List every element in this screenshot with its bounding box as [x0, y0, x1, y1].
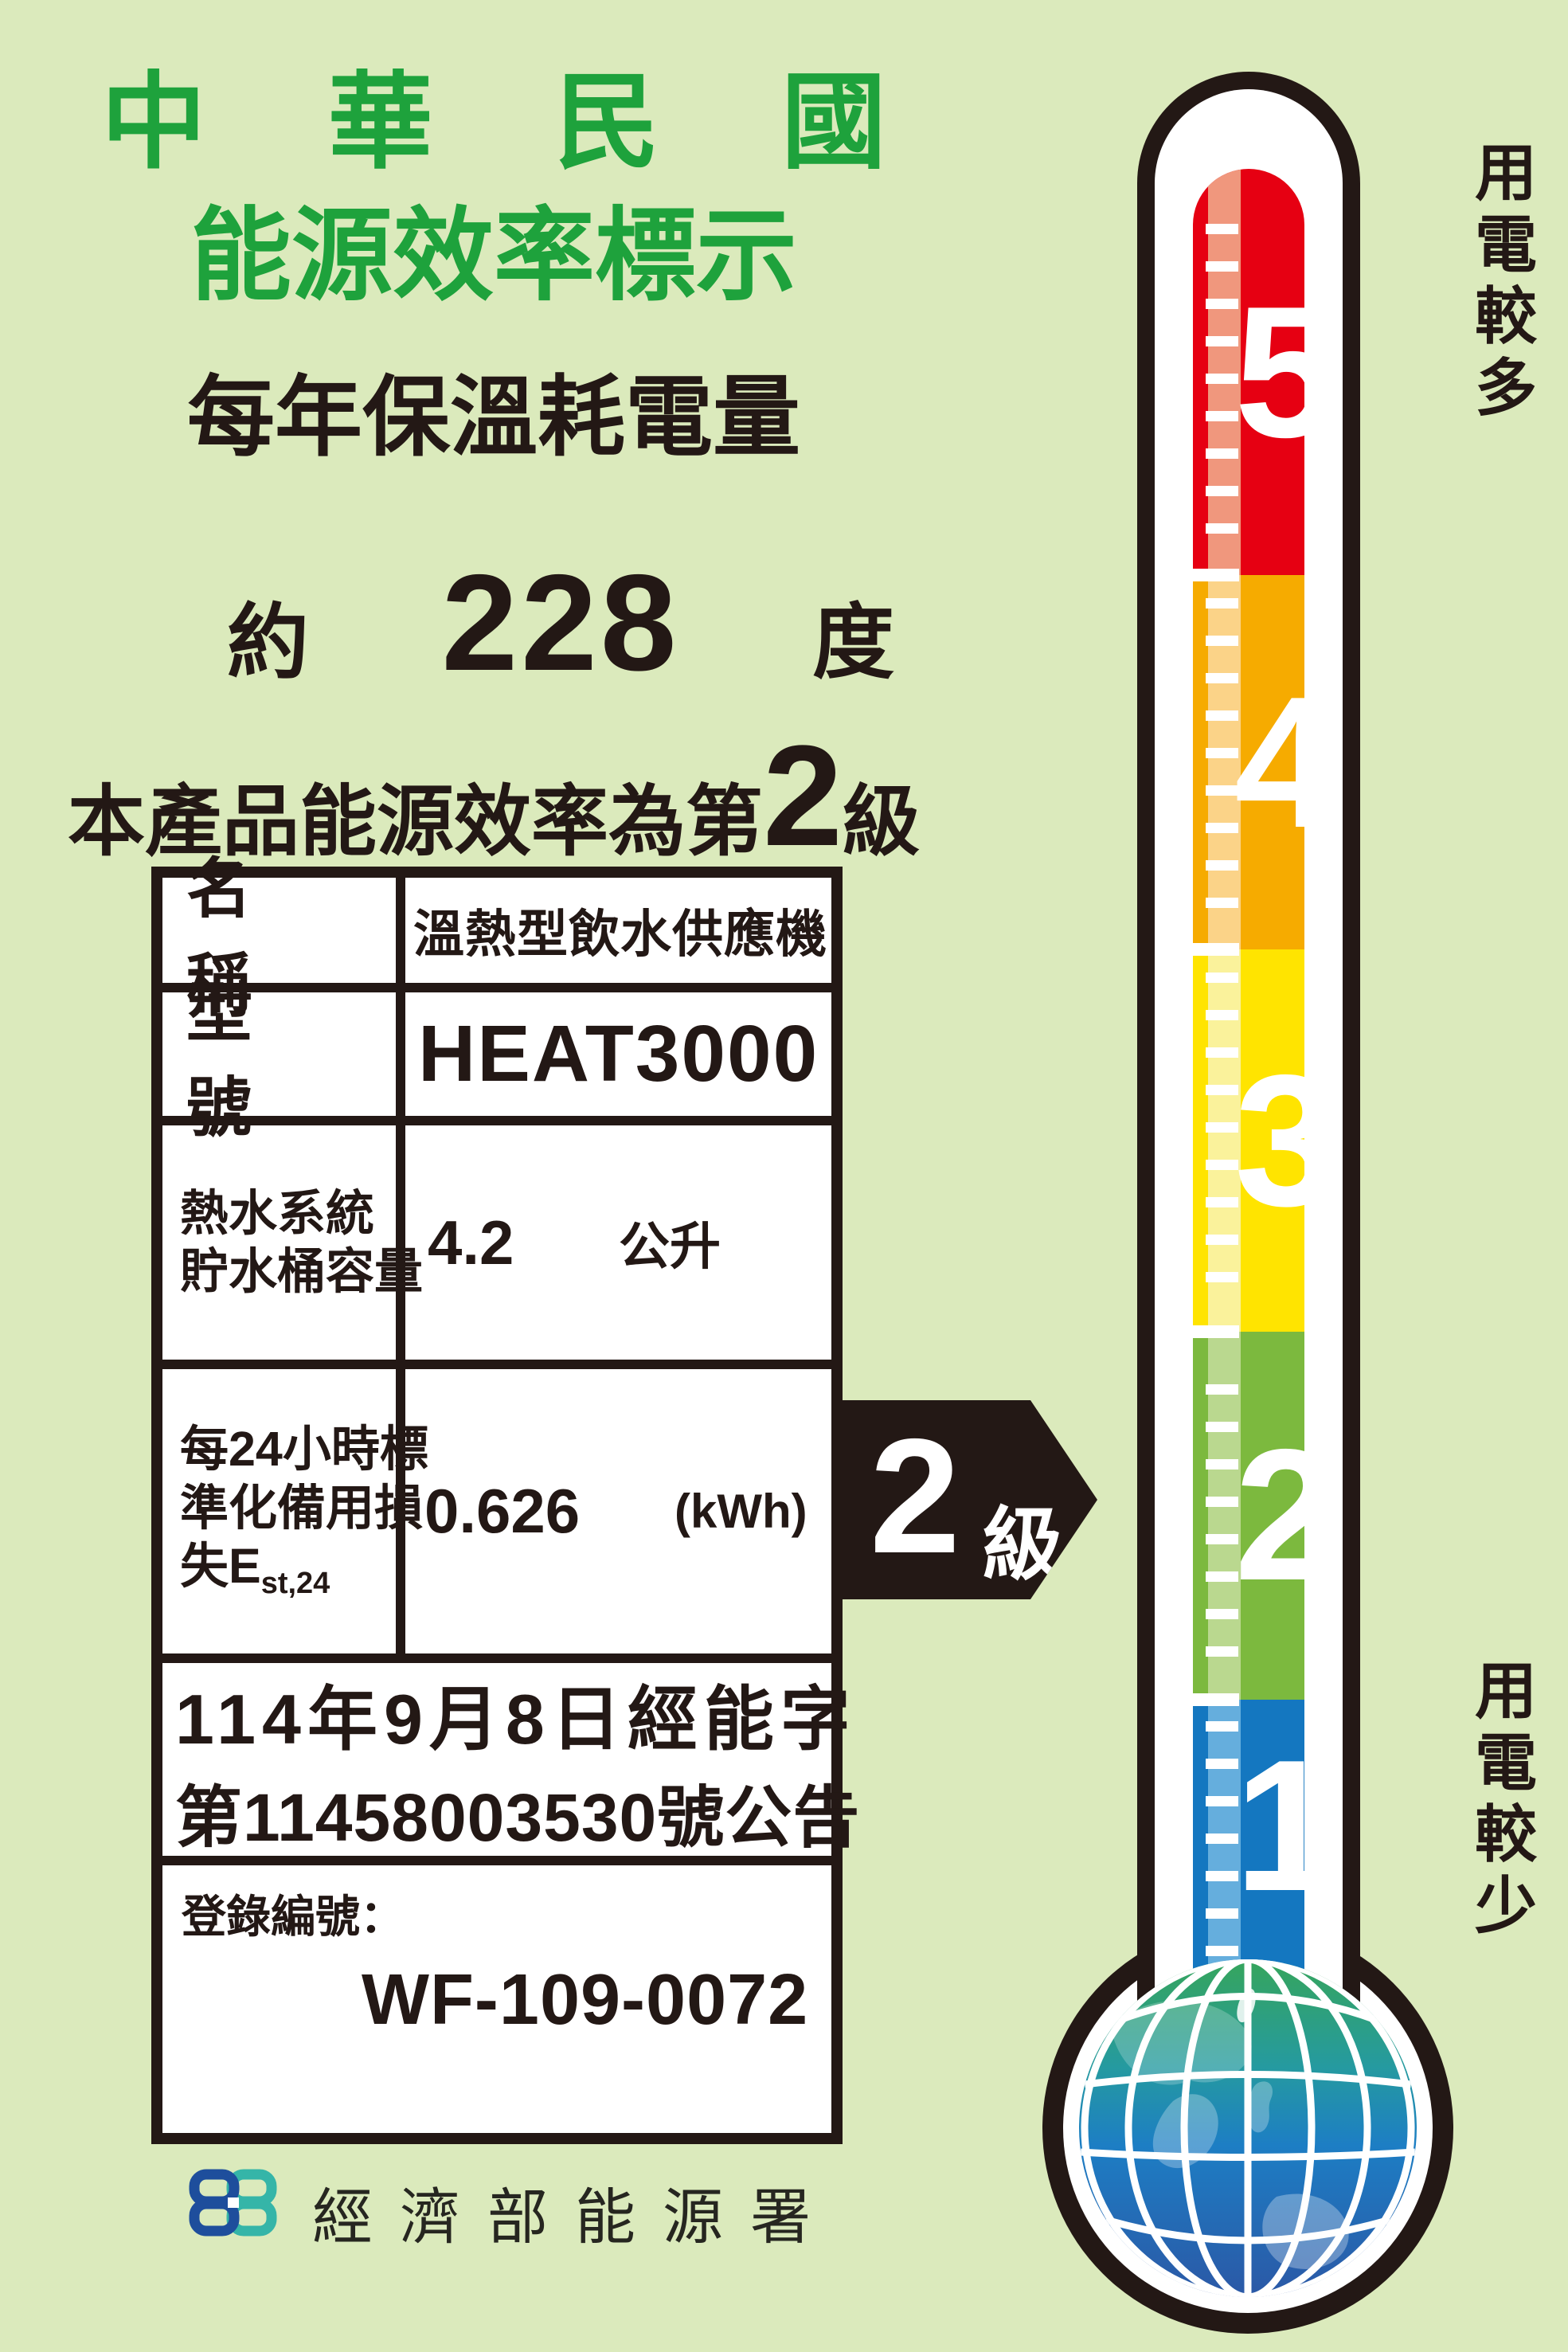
uses-less-power-label: 用電較少	[1470, 1655, 1542, 1942]
scale-tick	[1206, 1235, 1238, 1245]
label-title-line2: 能源效率標示	[0, 198, 987, 314]
rating-suffix: 級	[843, 781, 920, 863]
scale-tick	[1206, 1497, 1238, 1507]
scale-tick	[1206, 748, 1238, 758]
scale-tick	[1206, 1871, 1238, 1881]
scale-boundary-tick	[1193, 943, 1239, 956]
scale-tick	[1206, 710, 1238, 721]
agency-name: 經濟部能源署	[312, 2168, 838, 2256]
table-row-standby-loss: 每24小時標 準化備用損 失Est,24 0.626 (kWh)	[162, 1369, 831, 1663]
annual-consumption-heading: 每年保溫耗電量	[0, 368, 987, 469]
consumption-prefix: 約	[227, 601, 309, 683]
registration-number: WF-109-0072	[362, 1959, 808, 2041]
thermometer: 54321	[1137, 72, 1360, 2007]
scale-tick	[1206, 972, 1238, 983]
table-row-announcement: 114年9月8日經能字 第11458003530號公告	[162, 1663, 831, 1865]
announcement-line1: 114年9月8日經能字	[175, 1663, 860, 1764]
scale-tick	[1206, 1759, 1238, 1769]
model-value: HEAT3000	[405, 1008, 819, 1100]
standby-loss-label-line3: 失Est,24	[180, 1537, 396, 1603]
vertical-caption-char: 較	[1470, 1798, 1542, 1870]
scale-boundary-tick	[1193, 1693, 1239, 1706]
model-label: 型 號	[186, 960, 396, 1149]
scale-boundary-tick	[1193, 1325, 1239, 1338]
scale-tick	[1206, 1946, 1238, 1956]
scale-tick	[1206, 374, 1238, 384]
scale-tick	[1206, 1384, 1238, 1395]
scale-tick	[1206, 448, 1238, 459]
scale-tick	[1206, 1571, 1238, 1582]
scale-tick	[1206, 636, 1238, 646]
vertical-caption-char: 少	[1470, 1870, 1542, 1942]
spec-table: 名 稱 溫熱型飲水供應機 型 號 HEAT3000 熱水系統 貯水桶容量 4.2…	[151, 867, 843, 2144]
thermometer-level-number-4: 4	[1234, 668, 1304, 855]
scale-tick	[1206, 1010, 1238, 1020]
consumption-value: 228	[442, 554, 680, 691]
earth-globe	[1079, 1959, 1417, 2297]
scale-tick	[1206, 1160, 1238, 1170]
standby-loss-value: 0.626	[424, 1475, 580, 1548]
grade-arrow-suffix: 級	[983, 1480, 1062, 1595]
scale-tick	[1206, 785, 1238, 796]
scale-tick	[1206, 523, 1238, 534]
vertical-caption-char: 用	[1470, 1655, 1542, 1727]
scale-tick	[1206, 261, 1238, 272]
vertical-caption-char: 多	[1470, 352, 1542, 424]
rating-prefix: 本產品能源效率為第	[68, 781, 763, 863]
standby-loss-label-line2: 準化備用損	[180, 1479, 396, 1537]
table-row-tank-capacity: 熱水系統 貯水桶容量 4.2 公升	[162, 1125, 831, 1369]
scale-tick	[1206, 336, 1238, 346]
scale-tick	[1206, 598, 1238, 609]
thermometer-level-number-3: 3	[1234, 1047, 1304, 1234]
scale-tick	[1206, 1122, 1238, 1133]
energy-efficiency-label: 中 華 民 國 能源效率標示 每年保溫耗電量 約 228 度 本產品能源效率為第…	[0, 0, 1568, 2352]
scale-tick	[1206, 1721, 1238, 1732]
thermometer-level-number-1: 1	[1234, 1732, 1304, 1919]
scale-tick	[1206, 224, 1238, 234]
announcement-line2: 第11458003530號公告	[175, 1764, 860, 1861]
vertical-caption-char: 用	[1470, 137, 1542, 209]
vertical-caption-char: 較	[1470, 280, 1542, 352]
scale-tick	[1206, 1047, 1238, 1058]
label-title-line1: 中 華 民 國	[0, 62, 987, 183]
standby-loss-label-line1: 每24小時標	[180, 1420, 396, 1478]
consumption-unit: 度	[812, 601, 894, 683]
tank-capacity-value: 4.2	[428, 1207, 514, 1279]
scale-tick	[1206, 1422, 1238, 1432]
tank-capacity-unit: 公升	[619, 1206, 721, 1279]
scale-boundary-tick	[1193, 569, 1239, 581]
grade-arrow: 2 級	[841, 1400, 1097, 1599]
thermometer-level-number-2: 2	[1234, 1421, 1304, 1608]
vertical-caption-char: 電	[1470, 209, 1542, 280]
energy-administration-logo-icon	[189, 2169, 277, 2237]
scale-tick	[1206, 1609, 1238, 1619]
scale-tick	[1206, 299, 1238, 309]
scale-tick	[1206, 1272, 1238, 1282]
scale-tick	[1206, 673, 1238, 683]
scale-tick	[1206, 486, 1238, 496]
tank-capacity-label-line2: 貯水桶容量	[180, 1243, 396, 1301]
scale-tick	[1206, 860, 1238, 871]
scale-tick	[1206, 411, 1238, 421]
uses-more-power-label: 用電較多	[1470, 137, 1542, 424]
scale-tick	[1206, 823, 1238, 833]
thermometer-level-number-5: 5	[1234, 278, 1304, 465]
consumption-row: 約 228 度	[227, 550, 894, 691]
scale-tick	[1206, 1796, 1238, 1806]
tank-capacity-label-line1: 熱水系統	[180, 1184, 396, 1243]
thermometer-inner-ring: 54321	[1155, 89, 1343, 2007]
scale-tick	[1206, 1534, 1238, 1544]
table-row-model: 型 號 HEAT3000	[162, 992, 831, 1125]
scale-tick	[1206, 1197, 1238, 1207]
scale-tick	[1206, 898, 1238, 908]
registration-label: 登錄編號：	[182, 1881, 405, 1946]
thermometer-column: 54321	[1193, 169, 1304, 2007]
product-name-value: 溫熱型飲水供應機	[405, 894, 827, 967]
table-row-registration: 登錄編號： WF-109-0072	[162, 1865, 831, 2085]
scale-tick	[1206, 1646, 1238, 1657]
rating-value: 2	[763, 730, 843, 863]
scale-tick	[1206, 1459, 1238, 1470]
grade-arrow-value: 2	[870, 1397, 960, 1596]
vertical-caption-char: 電	[1470, 1727, 1542, 1798]
standby-loss-unit: (kWh)	[675, 1484, 807, 1539]
scale-tick	[1206, 1908, 1238, 1919]
scale-tick	[1206, 1085, 1238, 1095]
scale-tick	[1206, 1833, 1238, 1844]
